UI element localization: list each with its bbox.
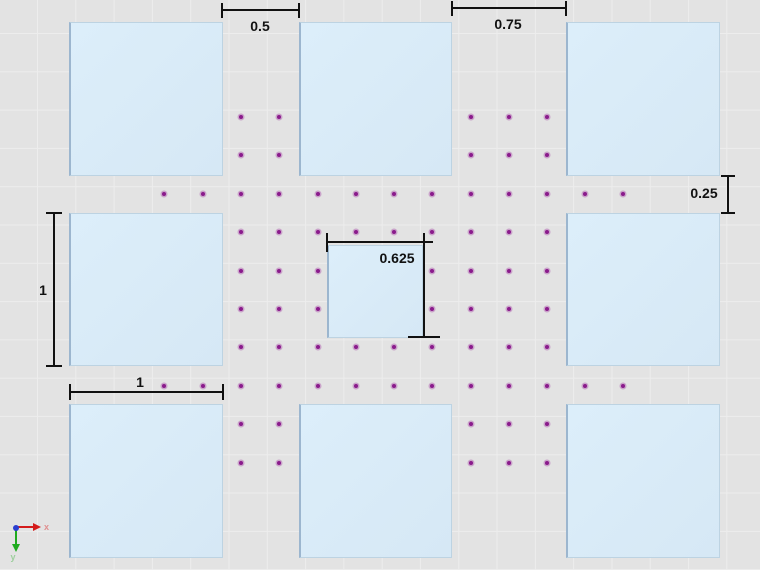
mesh-point[interactable] bbox=[277, 230, 281, 234]
mesh-point[interactable] bbox=[316, 192, 320, 196]
square-top-right[interactable] bbox=[566, 22, 720, 176]
mesh-point[interactable] bbox=[316, 230, 320, 234]
mesh-point[interactable] bbox=[507, 115, 511, 119]
dim-gap-top-right-line bbox=[452, 7, 566, 9]
x-axis-arrowhead-icon bbox=[33, 523, 41, 531]
mesh-point[interactable] bbox=[239, 230, 243, 234]
dim-bottom-square-width-line bbox=[70, 391, 223, 393]
mesh-point[interactable] bbox=[239, 307, 243, 311]
mesh-point[interactable] bbox=[277, 115, 281, 119]
mesh-point[interactable] bbox=[239, 269, 243, 273]
x-axis-label: x bbox=[44, 522, 49, 532]
mesh-point[interactable] bbox=[469, 461, 473, 465]
mesh-point[interactable] bbox=[583, 384, 587, 388]
mesh-point[interactable] bbox=[507, 307, 511, 311]
dim-left-square-height-line bbox=[46, 365, 62, 367]
dim-gap-top-right-line bbox=[565, 1, 567, 16]
mesh-point[interactable] bbox=[469, 345, 473, 349]
mesh-point[interactable] bbox=[239, 345, 243, 349]
mesh-point[interactable] bbox=[277, 153, 281, 157]
mesh-point[interactable] bbox=[316, 345, 320, 349]
mesh-point[interactable] bbox=[430, 345, 434, 349]
mesh-point[interactable] bbox=[201, 384, 205, 388]
coordinate-axes-indicator: x y bbox=[0, 0, 70, 60]
mesh-point[interactable] bbox=[430, 192, 434, 196]
origin-point-icon bbox=[13, 525, 19, 531]
dim-center-square-width-line bbox=[326, 233, 328, 252]
dim-gap-top-right-value: 0.75 bbox=[494, 17, 521, 31]
mesh-point[interactable] bbox=[277, 345, 281, 349]
dim-center-square-height-line bbox=[408, 336, 440, 338]
square-bottom-right[interactable] bbox=[566, 404, 720, 558]
mesh-point[interactable] bbox=[469, 269, 473, 273]
mesh-point[interactable] bbox=[239, 422, 243, 426]
mesh-point[interactable] bbox=[239, 384, 243, 388]
x-axis-arrow bbox=[17, 526, 33, 528]
mesh-point[interactable] bbox=[316, 307, 320, 311]
square-middle-right[interactable] bbox=[566, 213, 720, 366]
mesh-point[interactable] bbox=[545, 384, 549, 388]
mesh-point[interactable] bbox=[430, 307, 434, 311]
mesh-point[interactable] bbox=[354, 384, 358, 388]
mesh-point[interactable] bbox=[507, 153, 511, 157]
mesh-point[interactable] bbox=[545, 192, 549, 196]
mesh-point[interactable] bbox=[507, 384, 511, 388]
dim-gap-top-left-line bbox=[221, 3, 223, 18]
mesh-point[interactable] bbox=[239, 115, 243, 119]
square-top-left[interactable] bbox=[69, 22, 223, 176]
mesh-point[interactable] bbox=[239, 461, 243, 465]
mesh-point[interactable] bbox=[469, 230, 473, 234]
mesh-point[interactable] bbox=[354, 192, 358, 196]
mesh-point[interactable] bbox=[507, 230, 511, 234]
dim-center-square-height-line bbox=[423, 233, 425, 337]
square-bottom-middle[interactable] bbox=[299, 404, 452, 558]
mesh-point[interactable] bbox=[469, 115, 473, 119]
mesh-point[interactable] bbox=[430, 269, 434, 273]
mesh-point[interactable] bbox=[545, 307, 549, 311]
mesh-point[interactable] bbox=[162, 192, 166, 196]
mesh-point[interactable] bbox=[354, 230, 358, 234]
mesh-point[interactable] bbox=[239, 153, 243, 157]
mesh-point[interactable] bbox=[469, 153, 473, 157]
dim-bottom-square-width-value: 1 bbox=[136, 375, 144, 389]
dim-left-square-height-line bbox=[53, 213, 55, 366]
mesh-point[interactable] bbox=[507, 461, 511, 465]
mesh-point[interactable] bbox=[545, 422, 549, 426]
mesh-point[interactable] bbox=[392, 192, 396, 196]
mesh-point[interactable] bbox=[392, 345, 396, 349]
mesh-point[interactable] bbox=[201, 192, 205, 196]
dim-center-square-width-value: 0.625 bbox=[379, 251, 414, 265]
dim-gap-top-left-line bbox=[222, 9, 299, 11]
mesh-point[interactable] bbox=[392, 384, 396, 388]
mesh-point[interactable] bbox=[316, 384, 320, 388]
mesh-point[interactable] bbox=[545, 230, 549, 234]
dim-left-square-height-line bbox=[46, 212, 62, 214]
mesh-point[interactable] bbox=[392, 230, 396, 234]
mesh-point[interactable] bbox=[277, 461, 281, 465]
geometry-viewport[interactable]: 0.50.750.25110.625 x y bbox=[0, 0, 760, 570]
dim-bottom-square-width-line bbox=[69, 384, 71, 400]
mesh-point[interactable] bbox=[277, 307, 281, 311]
mesh-point[interactable] bbox=[469, 384, 473, 388]
square-top-middle[interactable] bbox=[299, 22, 452, 176]
mesh-point[interactable] bbox=[621, 192, 625, 196]
mesh-point[interactable] bbox=[545, 115, 549, 119]
mesh-point[interactable] bbox=[621, 384, 625, 388]
square-middle-left[interactable] bbox=[69, 213, 223, 366]
mesh-point[interactable] bbox=[162, 384, 166, 388]
y-axis-label: y bbox=[10, 552, 15, 562]
dim-left-square-height-value: 1 bbox=[39, 283, 47, 297]
dim-gap-top-left-value: 0.5 bbox=[250, 19, 269, 33]
mesh-point[interactable] bbox=[239, 192, 243, 196]
dim-gap-right-value: 0.25 bbox=[690, 186, 717, 200]
mesh-point[interactable] bbox=[583, 192, 587, 196]
mesh-point[interactable] bbox=[545, 269, 549, 273]
mesh-point[interactable] bbox=[469, 307, 473, 311]
mesh-point[interactable] bbox=[545, 345, 549, 349]
mesh-point[interactable] bbox=[545, 153, 549, 157]
dim-gap-top-right-line bbox=[451, 1, 453, 16]
dim-gap-right-line bbox=[727, 176, 729, 213]
mesh-point[interactable] bbox=[507, 345, 511, 349]
mesh-point[interactable] bbox=[430, 230, 434, 234]
mesh-point[interactable] bbox=[316, 269, 320, 273]
mesh-point[interactable] bbox=[277, 384, 281, 388]
mesh-point[interactable] bbox=[277, 269, 281, 273]
dim-gap-right-line bbox=[721, 175, 735, 177]
mesh-point[interactable] bbox=[507, 192, 511, 196]
mesh-point[interactable] bbox=[469, 422, 473, 426]
mesh-point[interactable] bbox=[430, 384, 434, 388]
dim-gap-top-left-line bbox=[298, 3, 300, 18]
mesh-point[interactable] bbox=[507, 422, 511, 426]
dim-gap-right-line bbox=[721, 212, 735, 214]
dim-bottom-square-width-line bbox=[222, 384, 224, 400]
mesh-point[interactable] bbox=[545, 461, 549, 465]
mesh-point[interactable] bbox=[507, 269, 511, 273]
y-axis-arrowhead-icon bbox=[12, 544, 20, 552]
dim-center-square-width-line bbox=[327, 241, 433, 243]
mesh-point[interactable] bbox=[277, 422, 281, 426]
mesh-point[interactable] bbox=[277, 192, 281, 196]
square-bottom-left[interactable] bbox=[69, 404, 223, 558]
mesh-point[interactable] bbox=[354, 345, 358, 349]
mesh-point[interactable] bbox=[469, 192, 473, 196]
